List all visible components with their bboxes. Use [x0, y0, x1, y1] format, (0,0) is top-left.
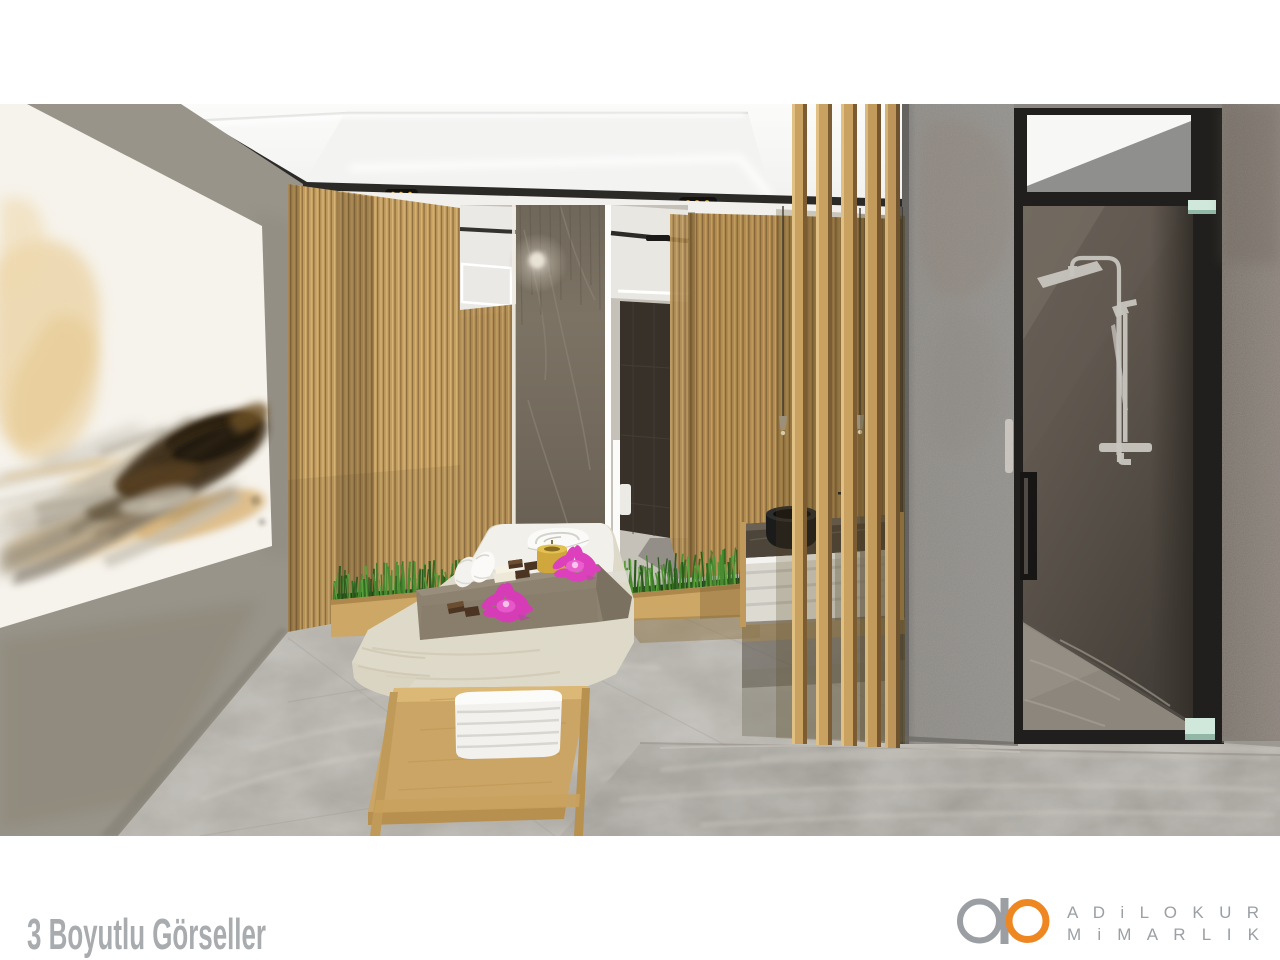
svg-text:A D i L O K U R: A D i L O K U R — [1067, 903, 1259, 922]
svg-text:3 Boyutlu Görseller: 3 Boyutlu Görseller — [27, 910, 266, 959]
